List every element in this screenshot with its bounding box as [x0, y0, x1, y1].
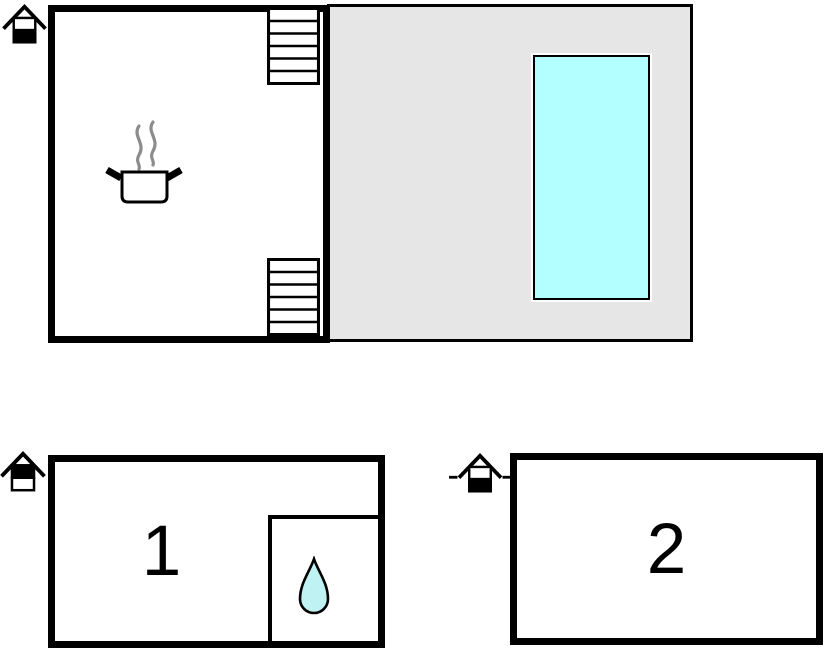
stairs-lower-icon: [267, 258, 320, 336]
cooking-pot-icon: [99, 112, 189, 207]
entrance-house-icon: [2, 2, 47, 47]
water-drop-icon: [296, 556, 332, 620]
stairs-upper-icon: [267, 7, 320, 85]
entrance-house-with-dashes-icon: [448, 451, 512, 496]
room-2-label: 2: [517, 460, 816, 638]
floorplan-canvas: 1 2: [0, 0, 827, 652]
bathroom-wall-vertical: [268, 515, 272, 641]
bathroom-wall-horizontal: [268, 515, 378, 519]
room-1-label: 1: [55, 462, 268, 641]
entrance-house-icon: [0, 449, 46, 495]
swimming-pool: [533, 55, 650, 300]
